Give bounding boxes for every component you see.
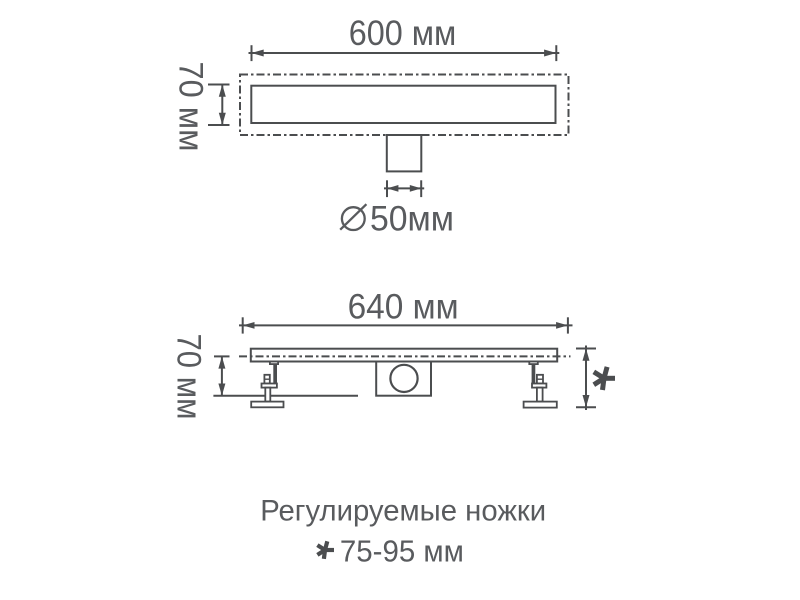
svg-text:600 мм: 600 мм (349, 14, 457, 53)
svg-text:50мм: 50мм (370, 199, 454, 239)
svg-text:Регулируемые ножки: Регулируемые ножки (260, 495, 546, 528)
svg-text:70 мм: 70 мм (171, 62, 209, 152)
svg-text:70 мм: 70 мм (170, 334, 208, 420)
svg-text:640 мм: 640 мм (348, 288, 459, 327)
svg-text:75-95 мм: 75-95 мм (340, 534, 464, 568)
